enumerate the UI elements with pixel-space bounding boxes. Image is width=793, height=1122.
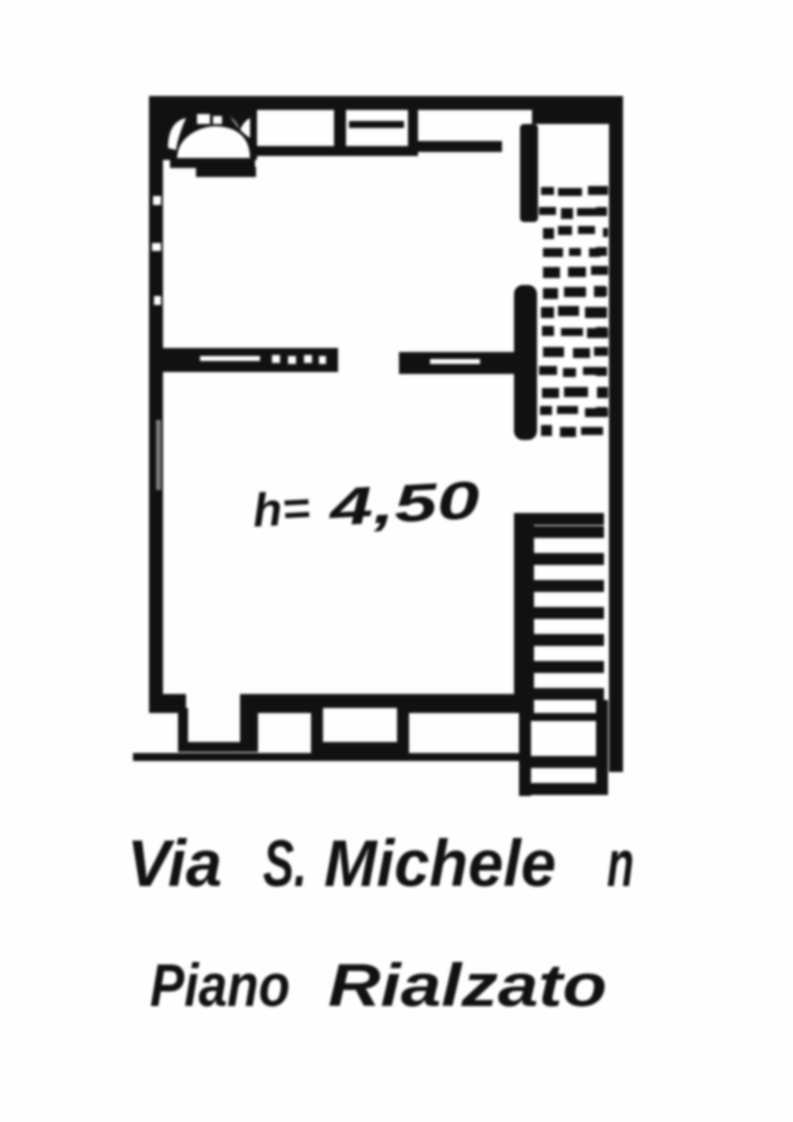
svg-text:Michele: Michele: [324, 826, 556, 900]
svg-text:Via: Via: [127, 826, 222, 900]
svg-text:Rialzato: Rialzato: [328, 952, 607, 1019]
svg-text:h=: h=: [251, 481, 311, 537]
svg-text:Piano: Piano: [150, 952, 290, 1019]
svg-text:n: n: [607, 826, 634, 900]
svg-text:S.: S.: [263, 826, 307, 900]
svg-text:4,50: 4,50: [327, 471, 481, 538]
